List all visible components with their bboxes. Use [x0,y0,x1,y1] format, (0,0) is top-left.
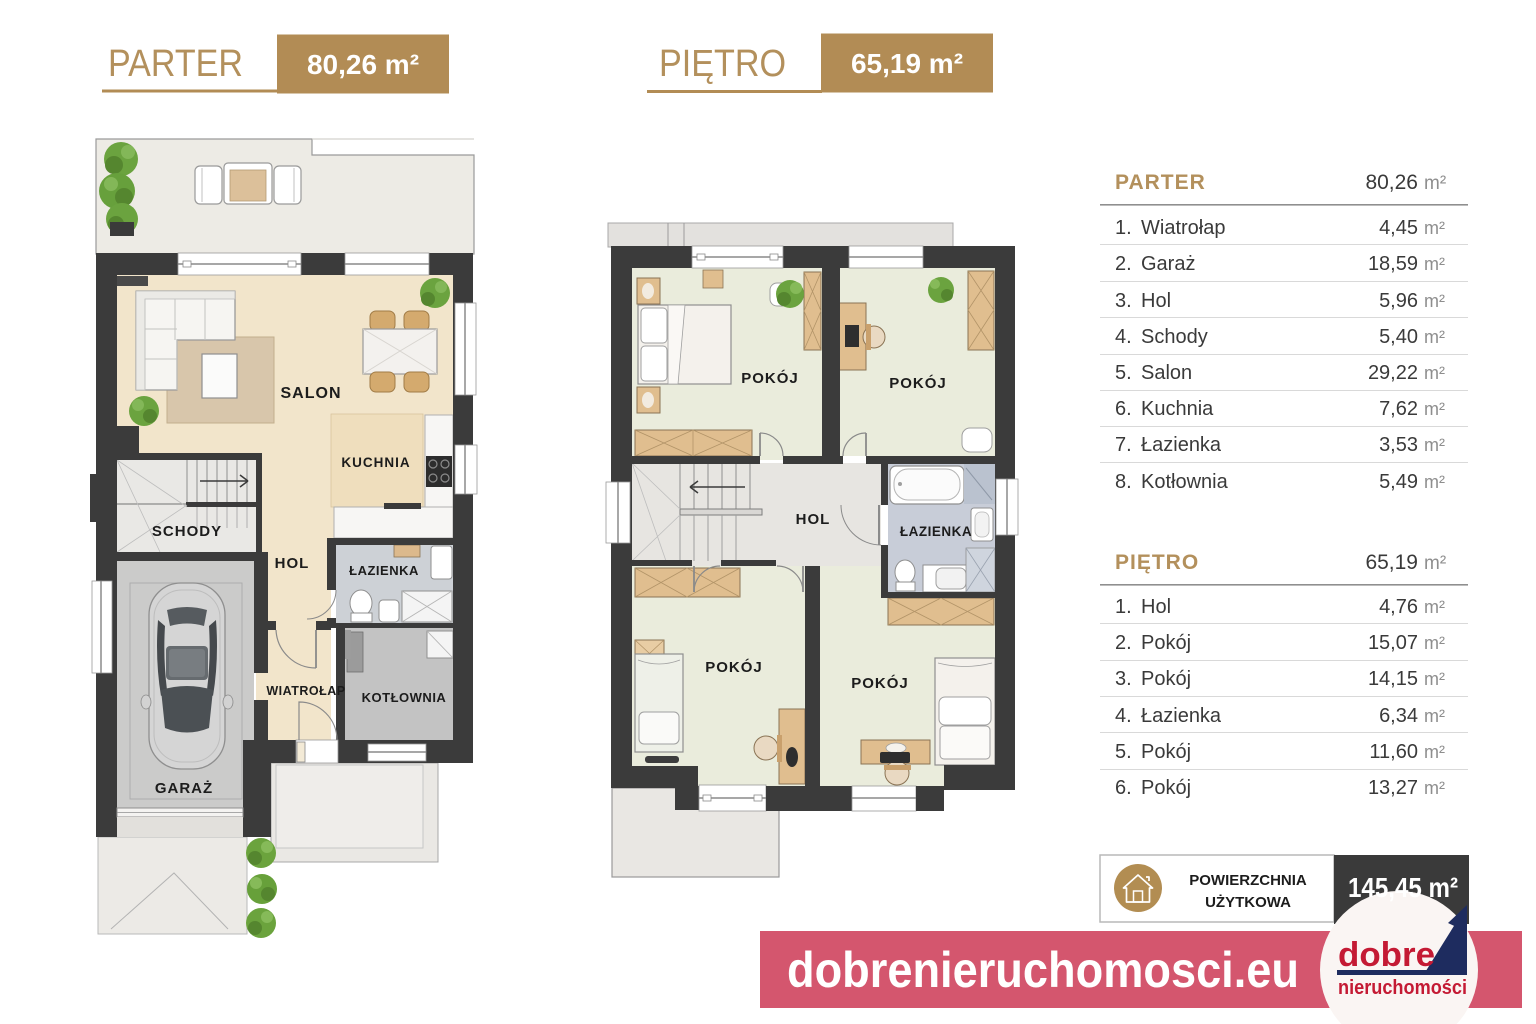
svg-text:m²: m² [1424,291,1445,311]
svg-text:SALON: SALON [281,385,342,402]
svg-text:18,59: 18,59 [1368,253,1418,275]
svg-text:Kotłownia: Kotłownia [1141,471,1229,493]
svg-text:Schody: Schody [1141,326,1208,348]
svg-text:PARTER: PARTER [108,43,243,85]
svg-text:ŁAZIENKA: ŁAZIENKA [349,563,419,578]
svg-text:Salon: Salon [1141,362,1192,384]
svg-text:POKÓJ: POKÓJ [705,658,763,676]
svg-text:Pokój: Pokój [1141,632,1191,654]
svg-text:29,22: 29,22 [1368,362,1418,384]
svg-text:4,76: 4,76 [1379,596,1418,618]
svg-text:7.: 7. [1115,434,1132,456]
svg-text:2.: 2. [1115,253,1132,275]
svg-text:m²: m² [1424,218,1445,238]
svg-text:11,60: 11,60 [1369,741,1418,763]
svg-text:POKÓJ: POKÓJ [889,374,947,392]
svg-text:2.: 2. [1115,632,1132,654]
svg-text:Łazienka: Łazienka [1141,434,1222,456]
svg-text:14,15: 14,15 [1368,668,1418,690]
svg-text:4.: 4. [1115,705,1132,727]
svg-text:Łazienka: Łazienka [1141,705,1222,727]
svg-text:3.: 3. [1115,290,1132,312]
svg-text:Garaż: Garaż [1141,253,1195,275]
svg-text:Hol: Hol [1141,290,1171,312]
svg-text:ŁAZIENKA: ŁAZIENKA [900,524,972,539]
svg-text:5,96: 5,96 [1379,290,1418,312]
svg-text:m²: m² [1424,363,1445,383]
svg-text:m²: m² [1424,472,1445,492]
svg-text:3,53: 3,53 [1379,434,1418,456]
svg-text:m²: m² [1424,327,1445,347]
svg-text:6,34: 6,34 [1379,705,1418,727]
svg-text:8.: 8. [1115,471,1132,493]
svg-text:WIATROŁAP: WIATROŁAP [266,684,345,698]
svg-text:Pokój: Pokój [1141,741,1191,763]
svg-text:SCHODY: SCHODY [152,523,222,540]
svg-text:POKÓJ: POKÓJ [741,369,799,387]
svg-text:m²: m² [1424,742,1445,762]
svg-text:m²: m² [1424,669,1445,689]
svg-text:Kuchnia: Kuchnia [1141,398,1214,420]
svg-text:dobre: dobre [1338,936,1435,974]
svg-text:80,26 m²: 80,26 m² [307,49,419,80]
svg-text:7,62: 7,62 [1379,398,1418,420]
svg-text:m²: m² [1424,254,1445,274]
svg-text:65,19: 65,19 [1365,551,1418,574]
svg-text:HOL: HOL [275,555,310,572]
svg-text:PIĘTRO: PIĘTRO [1115,551,1199,574]
svg-text:m²: m² [1424,597,1445,617]
svg-text:6.: 6. [1115,398,1132,420]
svg-text:m²: m² [1424,173,1446,194]
svg-text:m²: m² [1424,435,1445,455]
svg-text:KUCHNIA: KUCHNIA [341,455,410,470]
svg-text:145,45 m²: 145,45 m² [1348,872,1458,903]
svg-text:15,07: 15,07 [1368,632,1418,654]
svg-text:UŻYTKOWA: UŻYTKOWA [1205,894,1291,911]
svg-text:PIĘTRO: PIĘTRO [659,43,786,85]
svg-text:65,19 m²: 65,19 m² [851,48,963,79]
svg-text:13,27: 13,27 [1368,777,1418,799]
svg-text:GARAŻ: GARAŻ [155,780,213,797]
svg-text:PARTER: PARTER [1115,171,1206,194]
svg-text:HOL: HOL [796,511,831,528]
svg-text:1.: 1. [1115,217,1132,239]
svg-text:m²: m² [1424,399,1445,419]
svg-text:dobrenieruchomosci.eu: dobrenieruchomosci.eu [787,942,1299,998]
svg-text:5.: 5. [1115,741,1132,763]
svg-text:6.: 6. [1115,777,1132,799]
svg-text:POKÓJ: POKÓJ [851,674,909,692]
svg-text:3.: 3. [1115,668,1132,690]
svg-text:m²: m² [1424,633,1445,653]
svg-text:Wiatrołap: Wiatrołap [1141,217,1225,239]
svg-text:80,26: 80,26 [1365,171,1418,194]
svg-text:4,45: 4,45 [1379,217,1418,239]
svg-text:Pokój: Pokój [1141,668,1191,690]
svg-text:4.: 4. [1115,326,1132,348]
svg-text:5.: 5. [1115,362,1132,384]
svg-text:5,40: 5,40 [1379,326,1418,348]
svg-text:nieruchomości: nieruchomości [1338,977,1467,999]
svg-text:Hol: Hol [1141,596,1171,618]
svg-text:m²: m² [1424,778,1445,798]
svg-text:KOTŁOWNIA: KOTŁOWNIA [362,690,447,705]
svg-text:1.: 1. [1115,596,1132,618]
svg-text:POWIERZCHNIA: POWIERZCHNIA [1189,872,1307,889]
svg-text:Pokój: Pokój [1141,777,1191,799]
svg-text:m²: m² [1424,553,1446,574]
svg-text:5,49: 5,49 [1379,471,1418,493]
svg-text:m²: m² [1424,706,1445,726]
